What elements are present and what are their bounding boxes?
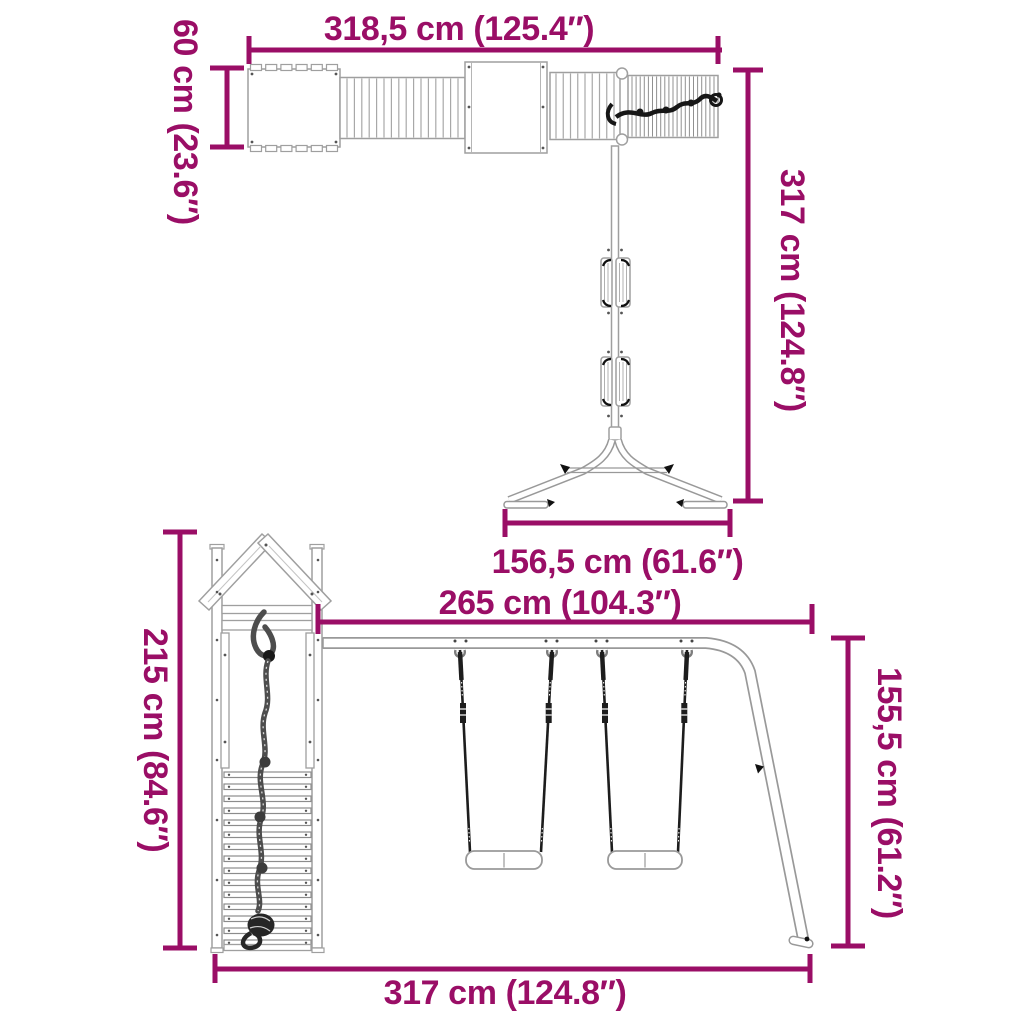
dimension-top-depth: [210, 66, 244, 150]
screw-dot: [305, 942, 307, 944]
frame-foot: [504, 502, 548, 509]
left-platform: [248, 65, 340, 152]
screw-dot: [228, 774, 230, 776]
ladder-rung: [224, 796, 311, 802]
ladder-rung: [224, 856, 311, 862]
ladder-rung: [224, 820, 311, 826]
hanger-bolt: [606, 640, 609, 643]
screw-dot: [216, 879, 219, 882]
screw-dot: [305, 858, 307, 860]
swings: [455, 650, 692, 852]
rope-adjuster: [460, 703, 466, 723]
screw-dot: [607, 249, 610, 252]
screw-dot: [228, 882, 230, 884]
hanger-bolt: [454, 640, 457, 643]
screw-dot: [542, 106, 545, 109]
beam-deck: [628, 76, 718, 138]
swing-seat-top-1: [601, 258, 630, 307]
screw-dot: [620, 249, 623, 252]
plank-tab: [281, 65, 292, 71]
bridge-a: [340, 78, 465, 139]
screw-dot: [607, 312, 610, 315]
screw-dot: [216, 591, 219, 594]
screw-dot: [228, 930, 230, 932]
screw-dot: [305, 822, 307, 824]
screw-dot: [305, 930, 307, 932]
ladder-rung: [224, 844, 311, 850]
screw-dot: [305, 906, 307, 908]
screw-dot: [620, 312, 623, 315]
screw-dot: [305, 882, 307, 884]
screw-dot: [305, 834, 307, 836]
screw-dot: [620, 415, 623, 418]
screw-dot: [317, 559, 320, 562]
hanger-bolt: [595, 640, 598, 643]
central-platform: [465, 62, 547, 153]
top-length-label: 317 cm (124.8″): [757, 140, 809, 440]
front-tower-height-label: 215 cm (84.6″): [120, 604, 172, 876]
screw-dot: [228, 798, 230, 800]
screw-dot: [317, 759, 320, 762]
screw-dot: [468, 106, 471, 109]
front-total-width-label: 317 cm (124.8″): [230, 976, 780, 1010]
screw-dot: [317, 639, 320, 642]
screw-dot: [228, 822, 230, 824]
swing-carabiner: [602, 652, 603, 680]
swing-seat-top-2: [601, 357, 630, 406]
product-dimension-diagram: 318,5 cm (125.4″) 60 cm (23.6″) 317 cm (…: [0, 0, 1024, 1024]
plank-tab: [327, 65, 338, 71]
screw-dot: [335, 141, 338, 144]
pole-sleeve: [609, 427, 621, 440]
ladder-rung: [224, 868, 311, 874]
ladder-rung: [224, 904, 311, 910]
plank-tab: [327, 146, 338, 152]
plank-tab: [251, 65, 262, 71]
swing-rope: [541, 650, 552, 852]
screw-dot: [228, 786, 230, 788]
hanger-bolt: [680, 640, 683, 643]
screw-dot: [468, 66, 471, 69]
top-depth-label: 60 cm (23.6″): [152, 0, 202, 244]
plank-tab: [266, 65, 277, 71]
screw-dot: [216, 639, 219, 642]
screw-dot: [620, 351, 623, 354]
ladder-rung: [224, 772, 311, 778]
screw-dot: [228, 834, 230, 836]
screw-dot: [305, 918, 307, 920]
screw-dot: [317, 934, 320, 937]
ladder-rung: [224, 892, 311, 898]
swing-carabiner: [460, 652, 461, 680]
screw-dot: [542, 66, 545, 69]
hanger-bolt: [465, 640, 468, 643]
top-base-width-label: 156,5 cm (61.6″): [505, 545, 730, 579]
swing-beam: [323, 637, 814, 948]
screw-dot: [216, 819, 219, 822]
screw-dot: [317, 699, 320, 702]
screw-dot: [228, 858, 230, 860]
beam-post-cap: [617, 68, 628, 79]
screw-dot: [607, 415, 610, 418]
screw-dot: [228, 918, 230, 920]
ladder-rung: [224, 808, 311, 814]
tower-foot: [312, 948, 324, 953]
screw-dot: [228, 810, 230, 812]
screw-dot: [542, 147, 545, 150]
screw-dot: [317, 879, 320, 882]
screw-dot: [305, 810, 307, 812]
plank-tab: [251, 146, 262, 152]
swing-rope: [678, 650, 687, 852]
screw-dot: [216, 759, 219, 762]
screw-dot: [305, 798, 307, 800]
screw-dot: [216, 934, 219, 937]
screw-dot: [228, 846, 230, 848]
top-view-drawing: [248, 62, 727, 508]
dimension-top-base-width: [503, 509, 733, 537]
hanger-bolt: [556, 640, 559, 643]
screw-dot: [305, 774, 307, 776]
beam-post-cap: [617, 134, 628, 145]
rope-adjuster: [602, 703, 608, 723]
hanger-bolt: [691, 640, 694, 643]
plank-tab: [296, 65, 307, 71]
screw-dot: [251, 141, 254, 144]
plank-tab: [266, 146, 277, 152]
screw-dot: [317, 819, 320, 822]
plank-tab: [311, 146, 322, 152]
screw-dot: [305, 786, 307, 788]
screw-dot: [335, 73, 338, 76]
screw-dot: [317, 591, 320, 594]
leg-foot: [788, 936, 813, 949]
plank-tab: [281, 146, 292, 152]
screw-dot: [228, 906, 230, 908]
front-frame-height-label: 155,5 cm (61.2″): [852, 636, 906, 950]
swing-rope: [602, 650, 612, 852]
screw-dot: [468, 147, 471, 150]
rope-adjuster: [681, 703, 687, 723]
a-frame-top: [504, 440, 727, 508]
frame-foot: [683, 502, 727, 509]
screw-dot: [228, 942, 230, 944]
tower-foot: [211, 948, 223, 953]
screw-dot: [228, 894, 230, 896]
swing-rope: [460, 650, 470, 852]
front-beam-label: 265 cm (104.3″): [330, 586, 790, 620]
swing-carabiner: [550, 652, 552, 680]
ladder-rung: [224, 880, 311, 886]
plank-tab: [311, 65, 322, 71]
screw-dot: [607, 351, 610, 354]
screw-dot: [216, 559, 219, 562]
screw-dot: [305, 870, 307, 872]
screw-dot: [305, 846, 307, 848]
screw-dot: [216, 699, 219, 702]
top-width-label: 318,5 cm (125.4″): [229, 12, 689, 46]
screw-dot: [228, 870, 230, 872]
screw-dot: [251, 73, 254, 76]
rope-adjuster: [546, 703, 552, 723]
screw-dot: [305, 894, 307, 896]
hanger-bolt: [545, 640, 548, 643]
plank-tab: [296, 146, 307, 152]
ladder-rung: [224, 832, 311, 838]
ladder-rung: [224, 784, 311, 790]
swing-carabiner: [686, 652, 687, 680]
